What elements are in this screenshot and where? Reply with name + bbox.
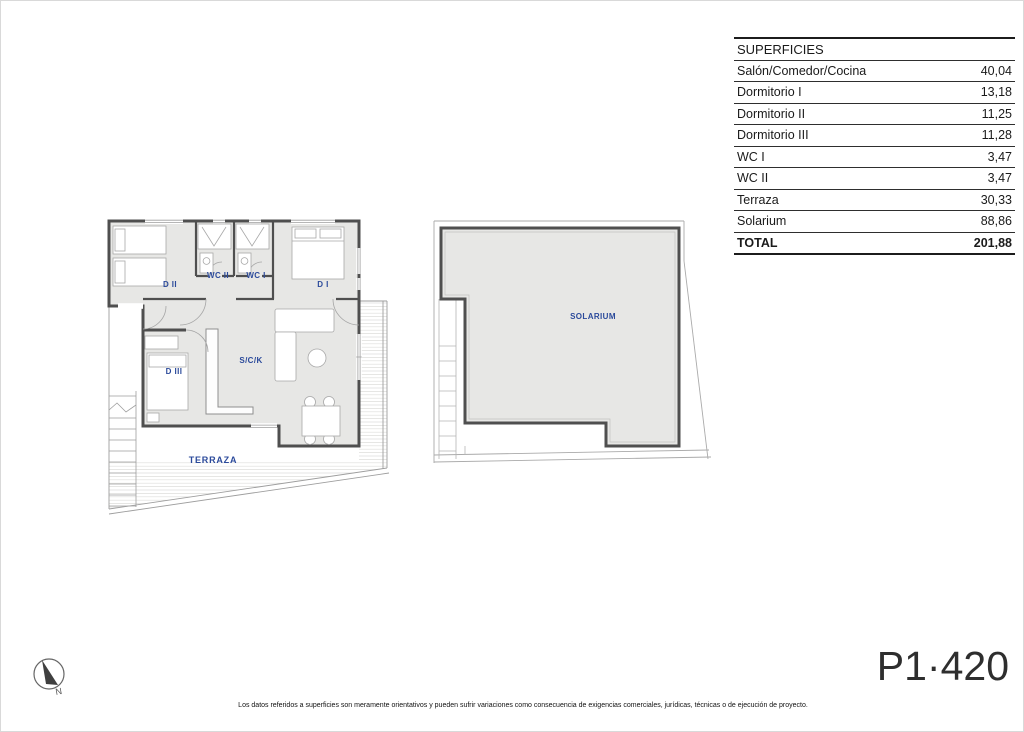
surfaces-table: SUPERFICIES Salón/Comedor/Cocina 40,04 D… xyxy=(734,37,1015,255)
room-name: Dormitorio I xyxy=(737,85,802,99)
room-area: 88,86 xyxy=(981,214,1012,228)
room-area: 11,28 xyxy=(982,128,1012,142)
sofa-chaise xyxy=(275,332,296,381)
room-name: WC I xyxy=(737,150,765,164)
total-area: 201,88 xyxy=(974,236,1012,250)
room-name: Solarium xyxy=(737,214,786,228)
room-area: 3,47 xyxy=(988,171,1012,185)
apartment-floor-plan: D II WC II WC I D I S/C/K D III TERRAZA xyxy=(96,196,396,526)
solarium-floor xyxy=(441,228,679,446)
room-label-wc2: WC II xyxy=(207,271,229,280)
room-label-wc1: WC I xyxy=(246,271,265,280)
room-name: Terraza xyxy=(737,193,779,207)
room-area: 30,33 xyxy=(981,193,1012,207)
room-area: 11,25 xyxy=(982,107,1012,121)
stair-break-mark xyxy=(109,403,136,412)
basin xyxy=(241,258,248,265)
basin xyxy=(203,258,210,265)
north-arrow-icon xyxy=(42,660,58,685)
pillow xyxy=(115,229,125,251)
coffee-table xyxy=(308,349,326,367)
sofa xyxy=(275,309,334,332)
room-name: Dormitorio III xyxy=(737,128,809,142)
table-row: Dormitorio I 13,18 xyxy=(734,82,1015,104)
room-label-d2: D II xyxy=(163,280,177,289)
plan-sheet: { "table": { "title": "SUPERFICIES", "ro… xyxy=(0,0,1024,732)
room-label-d1: D I xyxy=(317,280,328,289)
closet xyxy=(145,336,178,349)
solarium-stairs xyxy=(439,299,456,459)
room-area: 13,18 xyxy=(981,85,1012,99)
north-compass: N xyxy=(25,650,77,702)
pillow xyxy=(149,355,186,367)
nightstand xyxy=(147,413,159,422)
table-row: Dormitorio II 11,25 xyxy=(734,104,1015,126)
table-row: WC I 3,47 xyxy=(734,147,1015,169)
room-name: WC II xyxy=(737,171,768,185)
table-row: Dormitorio III 11,28 xyxy=(734,125,1015,147)
room-name: Dormitorio II xyxy=(737,107,805,121)
room-area: 40,04 xyxy=(981,64,1012,78)
table-total-row: TOTAL 201,88 xyxy=(734,233,1015,256)
solarium-floor-plan: SOLARIUM xyxy=(421,201,721,491)
table-row: Salón/Comedor/Cocina 40,04 xyxy=(734,61,1015,83)
total-label: TOTAL xyxy=(737,236,778,250)
table-row: WC II 3,47 xyxy=(734,168,1015,190)
pillow xyxy=(320,229,341,238)
room-area: 3,47 xyxy=(988,150,1012,164)
table-row: Terraza 30,33 xyxy=(734,190,1015,212)
room-label-sck: S/C/K xyxy=(239,356,262,365)
dining-table xyxy=(302,406,340,436)
pillow xyxy=(115,261,125,283)
disclaimer-text: Los datos referidos a superficies son me… xyxy=(1,702,1024,709)
plan-code: P1·420 xyxy=(867,643,1009,690)
table-row: Solarium 88,86 xyxy=(734,211,1015,233)
room-name: Salón/Comedor/Cocina xyxy=(737,64,866,78)
compass-north-label: N xyxy=(55,686,63,697)
room-label-solarium: SOLARIUM xyxy=(570,312,616,321)
table-header-row: SUPERFICIES xyxy=(734,39,1015,61)
room-label-terraza: TERRAZA xyxy=(189,455,238,465)
room-label-d3: D III xyxy=(166,367,183,376)
terrace-stairs xyxy=(109,391,136,507)
table-title: SUPERFICIES xyxy=(737,42,824,57)
pillow xyxy=(295,229,316,238)
